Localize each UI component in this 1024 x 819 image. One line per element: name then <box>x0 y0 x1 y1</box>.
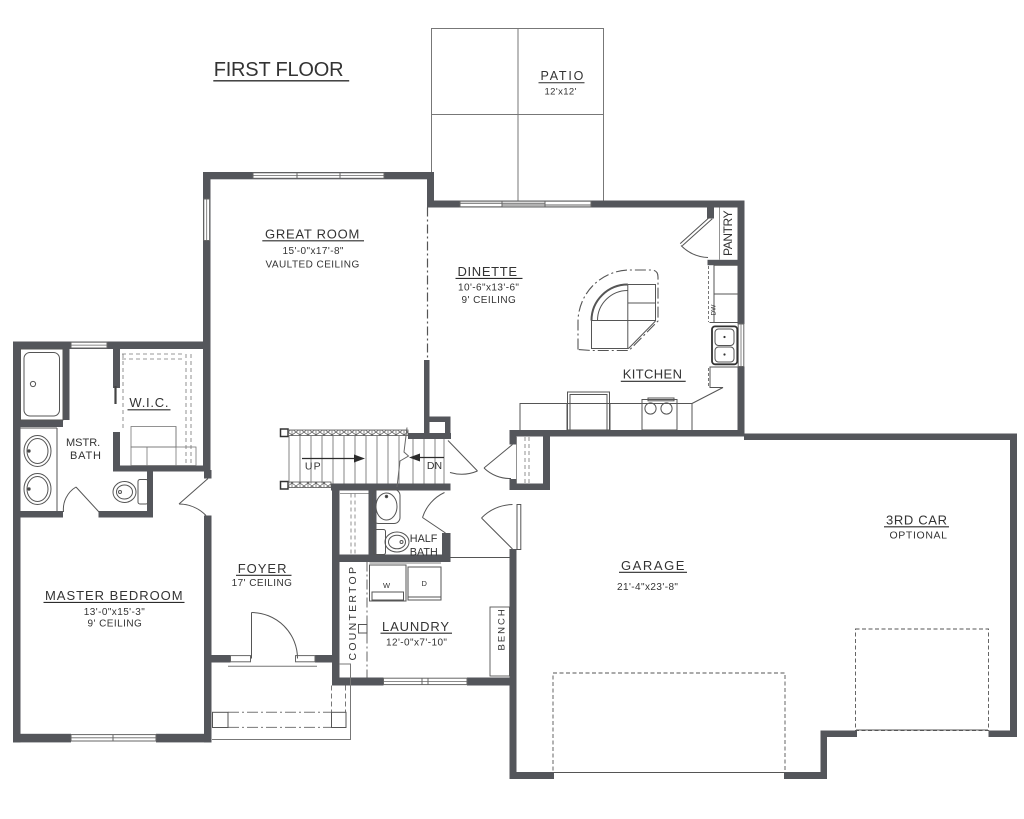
svg-text:PANTRY: PANTRY <box>721 210 735 256</box>
svg-text:OPTIONAL: OPTIONAL <box>890 529 948 541</box>
svg-text:W: W <box>383 581 391 590</box>
svg-text:MASTER BEDROOM: MASTER BEDROOM <box>45 588 184 603</box>
svg-text:12'x12': 12'x12' <box>545 87 577 98</box>
svg-text:21'-4"x23'-8": 21'-4"x23'-8" <box>617 582 678 593</box>
svg-text:FOYER: FOYER <box>238 561 288 576</box>
svg-text:COUNTERTOP: COUNTERTOP <box>347 565 359 661</box>
svg-text:UP: UP <box>305 460 322 472</box>
svg-text:9' CEILING: 9' CEILING <box>88 619 143 630</box>
svg-text:VAULTED CEILING: VAULTED CEILING <box>266 260 360 271</box>
svg-text:HALF: HALF <box>410 533 438 545</box>
svg-text:BATH: BATH <box>410 546 438 558</box>
svg-text:10'-6"x13'-6": 10'-6"x13'-6" <box>458 283 519 294</box>
svg-text:DINETTE: DINETTE <box>458 264 518 279</box>
svg-text:FIRST FLOOR: FIRST FLOOR <box>214 59 344 81</box>
svg-text:BENCH: BENCH <box>497 607 508 650</box>
svg-text:17' CEILING: 17' CEILING <box>232 578 293 589</box>
svg-text:13'-0"x15'-3": 13'-0"x15'-3" <box>84 607 145 618</box>
svg-text:BATH: BATH <box>70 450 102 462</box>
svg-text:9' CEILING: 9' CEILING <box>462 295 517 306</box>
svg-text:W.I.C.: W.I.C. <box>129 395 169 410</box>
svg-text:DN: DN <box>427 460 442 472</box>
svg-text:GREAT ROOM: GREAT ROOM <box>265 226 360 241</box>
svg-text:KITCHEN: KITCHEN <box>623 367 683 382</box>
svg-text:D: D <box>422 579 428 588</box>
svg-text:DW: DW <box>711 304 718 316</box>
svg-text:15'-0"x17'-8": 15'-0"x17'-8" <box>283 246 344 257</box>
svg-text:12'-0"x7'-10": 12'-0"x7'-10" <box>386 638 447 649</box>
svg-text:LAUNDRY: LAUNDRY <box>382 619 450 634</box>
svg-text:3RD CAR: 3RD CAR <box>886 512 948 527</box>
svg-text:GARAGE: GARAGE <box>621 558 686 573</box>
svg-text:PATIO: PATIO <box>541 69 586 83</box>
svg-text:MSTR.: MSTR. <box>66 437 100 449</box>
